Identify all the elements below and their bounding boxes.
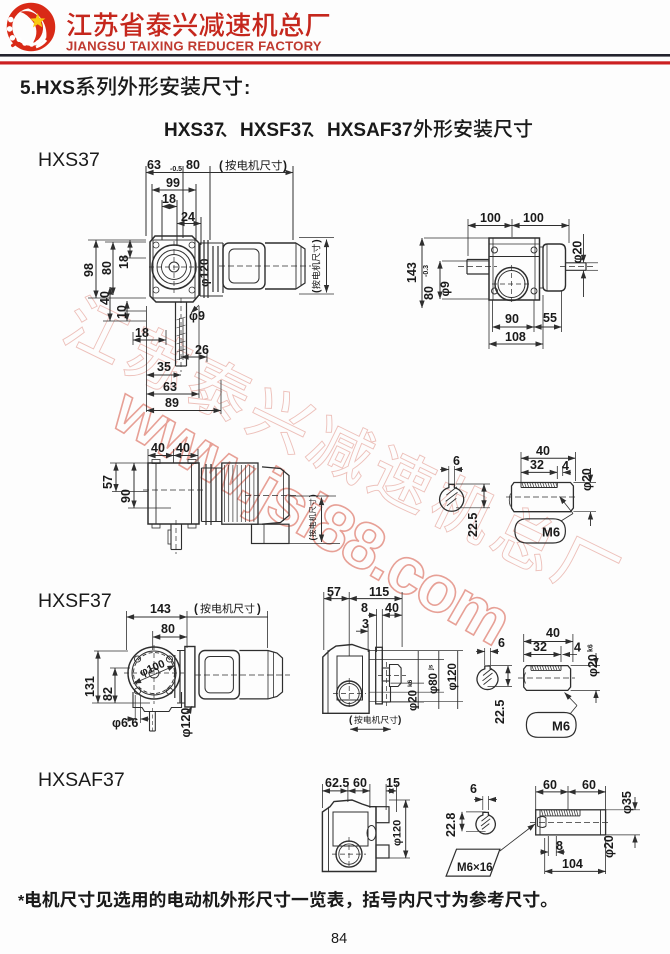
svg-text:18: 18 [117,255,131,269]
svg-text:90: 90 [119,489,133,503]
svg-text:(: ( [312,289,323,293]
svg-text:143: 143 [150,602,171,616]
svg-text:φ6.6: φ6.6 [112,716,138,730]
svg-text:100: 100 [523,211,544,225]
svg-text:φ120: φ120 [392,820,404,846]
svg-text:35: 35 [157,360,171,374]
svg-text:φ20: φ20 [580,468,594,491]
svg-text:8: 8 [361,601,368,615]
svg-text:22.5: 22.5 [493,700,507,724]
svg-text:φ80: φ80 [428,673,440,694]
svg-text:98: 98 [82,263,96,277]
svg-text:-0.5: -0.5 [170,166,182,173]
svg-text:143: 143 [405,262,419,283]
svg-text:JIANGSU TAIXING REDUCER FACTOR: JIANGSU TAIXING REDUCER FACTORY [66,39,322,54]
svg-text:15: 15 [386,776,400,790]
svg-text:HXSAF37: HXSAF37 [38,769,125,791]
svg-text:5.HXS: 5.HXS [20,78,75,99]
svg-text:115: 115 [369,585,389,599]
svg-text:*: * [18,893,25,910]
svg-text:57: 57 [327,585,341,599]
svg-text:40: 40 [176,441,190,455]
svg-text:(: ( [349,715,353,726]
svg-text:-0.3: -0.3 [423,265,430,277]
svg-text:40: 40 [546,626,560,640]
svg-text:HXSF37: HXSF37 [240,120,312,141]
svg-text:(: ( [219,159,223,173]
svg-text:80: 80 [186,158,200,172]
svg-text:22.5: 22.5 [466,513,480,537]
svg-text:104: 104 [562,857,583,871]
svg-text:HXSF37: HXSF37 [38,590,112,612]
svg-text:24: 24 [181,210,195,224]
svg-text:): ) [308,494,318,497]
svg-text:φ120: φ120 [179,708,193,738]
svg-text:): ) [398,715,401,726]
svg-text:18: 18 [162,192,176,206]
svg-text:60: 60 [582,778,596,792]
svg-text:k6: k6 [588,644,595,652]
svg-text:M6: M6 [542,525,560,540]
svg-text:6: 6 [470,782,477,796]
svg-text:6: 6 [453,454,460,468]
svg-text:8: 8 [556,839,563,853]
svg-text:): ) [257,604,261,616]
svg-text:HXSAF37: HXSAF37 [327,120,413,141]
svg-text:32: 32 [533,640,547,654]
svg-text:HXS37: HXS37 [38,149,100,171]
svg-text:φ9: φ9 [438,281,452,297]
svg-text:M6×16: M6×16 [457,862,492,874]
svg-text:82: 82 [101,687,115,701]
svg-text:): ) [283,159,287,173]
svg-text:6: 6 [498,636,505,650]
svg-text:40: 40 [151,441,165,455]
svg-text:90: 90 [505,312,519,326]
svg-text:4: 4 [562,459,569,473]
svg-text:40: 40 [385,601,399,615]
svg-text:): ) [312,239,323,242]
svg-text:84: 84 [331,931,347,947]
svg-text:(: ( [308,538,318,541]
svg-text:80: 80 [422,286,436,300]
svg-text:80: 80 [161,622,175,636]
svg-text:φ100: φ100 [138,658,167,679]
svg-text:3: 3 [362,617,369,631]
svg-text:26: 26 [195,343,209,357]
svg-text:k6: k6 [407,679,414,687]
svg-text:HXS37: HXS37 [164,120,224,141]
svg-text:40: 40 [536,444,550,458]
svg-text:(: ( [194,604,198,616]
svg-text:60: 60 [353,776,367,790]
svg-text:108: 108 [505,330,526,344]
svg-text:32: 32 [530,458,544,472]
svg-text:φ20: φ20 [602,835,616,858]
svg-text:100: 100 [480,211,501,225]
svg-text:62.5: 62.5 [325,776,349,790]
svg-text:63: 63 [163,380,177,394]
svg-text:φ20: φ20 [586,654,600,677]
svg-text:99: 99 [166,176,180,190]
svg-text:φ120: φ120 [447,663,459,690]
svg-text:φ20: φ20 [408,690,420,711]
svg-text:89: 89 [165,396,179,410]
svg-text:60: 60 [543,778,557,792]
svg-text:131: 131 [83,676,97,697]
svg-text::: : [244,78,250,99]
svg-text:4: 4 [574,641,581,655]
svg-text:22.8: 22.8 [444,813,458,837]
svg-text:10: 10 [115,305,129,319]
svg-text:80: 80 [100,261,114,275]
svg-text:φ9: φ9 [189,309,205,323]
svg-text:63: 63 [147,158,161,172]
svg-text:57: 57 [101,475,115,489]
svg-text:φ35: φ35 [620,791,634,814]
svg-text:js: js [428,664,435,671]
svg-text:M6: M6 [552,719,570,734]
svg-text:55: 55 [543,311,557,325]
svg-text:φ20: φ20 [571,241,585,264]
